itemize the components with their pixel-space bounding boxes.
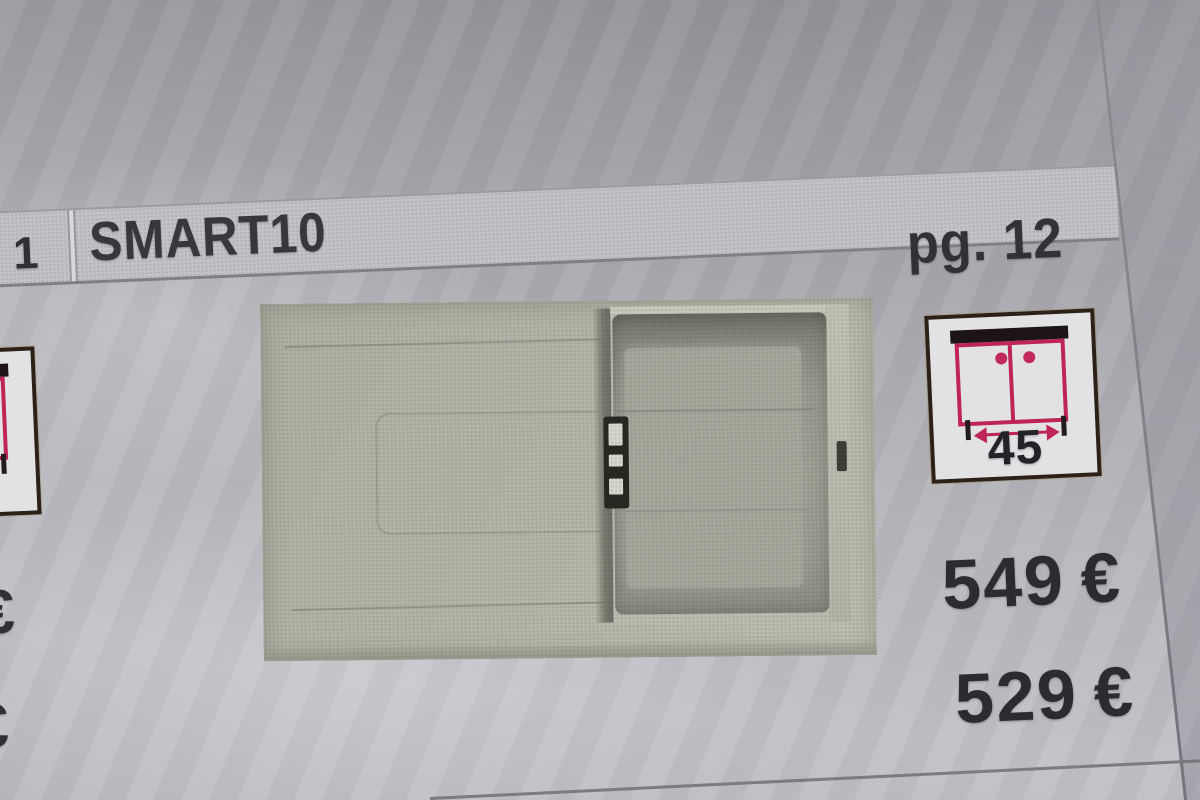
drainboard-recess-outline <box>375 411 612 535</box>
cabinet-doors <box>955 339 1069 427</box>
door-knob-left <box>995 352 1008 365</box>
cabinet-width-value: 45 <box>933 417 1097 479</box>
product-header-row: 1 SMART10 pg. 12 <box>0 164 1119 287</box>
fitting-slot <box>609 478 623 494</box>
width-arrow-tick-right <box>1 454 7 474</box>
cabinet-doors <box>0 377 8 465</box>
basin-bowl <box>612 312 829 614</box>
product-index-cell: 1 <box>0 210 69 284</box>
price-secondary-amount: 529 <box>953 655 1079 738</box>
basin-overflow-hole <box>837 441 847 471</box>
basin-floor <box>625 347 804 589</box>
header-cell-divider <box>67 210 78 281</box>
price-primary: 549€ <box>941 542 1124 620</box>
sink-basin <box>610 304 851 624</box>
basin-drain-fitting <box>603 416 629 508</box>
page-reference: pg. 12 <box>906 205 1065 276</box>
price-secondary-currency: € <box>1092 652 1136 732</box>
drainboard-groove-bottom <box>291 601 607 611</box>
adjacent-price-currency-bottom: € <box>0 695 10 759</box>
door-knob-right <box>1023 351 1036 364</box>
adjacent-cabinet-icon-partial <box>0 346 42 521</box>
product-index: 1 <box>12 227 39 280</box>
price-primary-amount: 549 <box>940 541 1066 624</box>
fitting-slot <box>608 423 622 445</box>
drainboard-groove-top <box>285 338 603 348</box>
cabinet-door-divider <box>1008 345 1015 420</box>
product-model-name: SMART10 <box>88 200 328 274</box>
fitting-slot <box>609 454 623 466</box>
photographed-catalog-page: 1 SMART10 pg. 12 <box>0 0 1200 800</box>
price-primary-currency: € <box>1079 538 1123 618</box>
photo-bottom-shadow <box>264 642 877 661</box>
row-separator-line <box>430 758 1200 800</box>
adjacent-price-currency-top: € <box>0 581 16 645</box>
product-photo-sink <box>260 298 877 661</box>
price-secondary: 529€ <box>954 656 1137 734</box>
base-cabinet-width-icon: 45 <box>924 308 1101 484</box>
